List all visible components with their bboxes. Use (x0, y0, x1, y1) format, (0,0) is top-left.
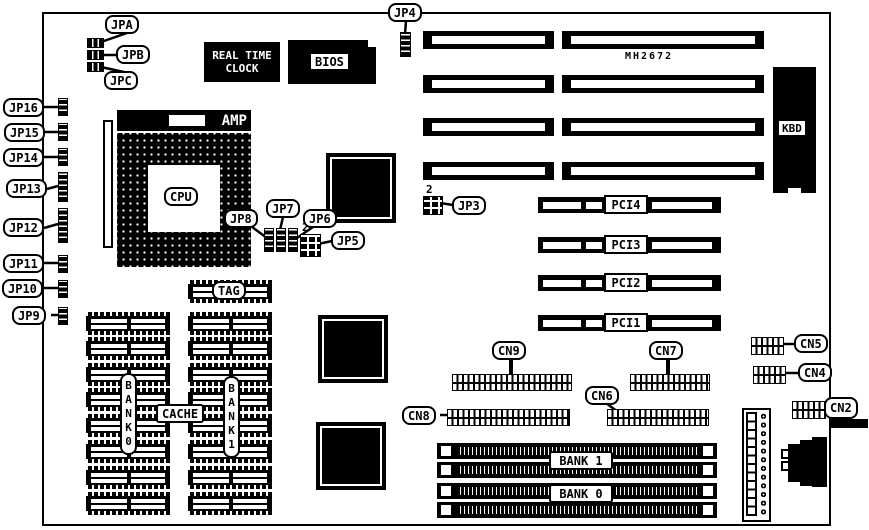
jp7-label: JP7 (266, 199, 300, 218)
jp13-jumper (58, 172, 68, 202)
din-contact (781, 461, 790, 471)
power-pin-column (760, 412, 767, 516)
cn2-label: CN2 (824, 397, 858, 419)
jp7-jumper (276, 228, 286, 252)
keyboard-din-connector (812, 437, 827, 487)
jp8-label: JP8 (224, 209, 258, 228)
cache-chip (86, 337, 170, 360)
jp3-pin2-marker: 2 (426, 183, 433, 196)
cache-chip (188, 492, 272, 515)
cache-chip (188, 312, 272, 335)
qfp-chip (316, 422, 386, 490)
isa-slot (423, 118, 554, 136)
jp16-label: JP16 (3, 98, 44, 117)
isa-slot (562, 75, 764, 93)
cache-chip (86, 466, 170, 489)
isa-slot (562, 118, 764, 136)
jp5-jumper (300, 234, 321, 257)
cn8-header (447, 409, 570, 426)
kbd-chip: KBD (773, 67, 816, 193)
qfp-chip (326, 153, 396, 223)
cn9-label: CN9 (492, 341, 526, 360)
simm-slot (437, 502, 717, 518)
pci4-label: PCI4 (604, 195, 648, 214)
jp13-label: JP13 (6, 179, 47, 198)
jpc-jumper (87, 62, 104, 72)
motherboard-diagram: MH2672 REAL TIME CLOCK BIOS KBD AMP CPU … (0, 0, 869, 530)
jp4-label: JP4 (388, 3, 422, 22)
jp12-jumper (58, 208, 68, 243)
cn6-label: CN6 (585, 386, 619, 405)
jp3-jumper (423, 196, 443, 215)
jp4-jumper (400, 32, 411, 57)
chipset-text: MH2672 (625, 51, 673, 62)
jp9-jumper (58, 307, 68, 325)
jp9-label: JP9 (12, 306, 46, 325)
bank0-column-label: BANK0 (120, 373, 137, 455)
rtc-label-line1: REAL TIME (212, 49, 272, 62)
cache-chip (188, 466, 272, 489)
cn5-label: CN5 (794, 334, 828, 353)
din-contact (781, 449, 790, 459)
jp8-jumper (264, 228, 274, 252)
isa-slot (562, 31, 764, 49)
jpa-jumper (87, 38, 104, 48)
jpb-label: JPB (116, 45, 150, 64)
rtc-label-line2: CLOCK (225, 62, 258, 75)
jp6-jumper (288, 228, 298, 252)
jp11-label: JP11 (3, 254, 44, 273)
cn9-header (452, 374, 572, 391)
cache-chip (188, 337, 272, 360)
jp12-label: JP12 (3, 218, 44, 237)
qfp-chip (318, 315, 388, 383)
pci-slot-3: PCI3 (538, 237, 721, 253)
bios-chip: BIOS (288, 40, 376, 84)
isa-slot (423, 75, 554, 93)
cn7-label: CN7 (649, 341, 683, 360)
pci2-label: PCI2 (604, 273, 648, 292)
isa-slot (423, 162, 554, 180)
cpu-label: CPU (164, 187, 198, 206)
kbd-label: KBD (778, 120, 806, 136)
socket-brand-label: AMP (222, 113, 247, 129)
cache-label: CACHE (156, 404, 204, 423)
jpb-jumper (87, 50, 104, 60)
pci-slot-2: PCI2 (538, 275, 721, 291)
jp10-label: JP10 (2, 279, 43, 298)
jp11-jumper (58, 255, 68, 273)
tag-label: TAG (212, 281, 246, 300)
isa-slot (423, 31, 554, 49)
jp15-label: JP15 (4, 123, 45, 142)
cpu-socket-header: AMP (117, 110, 251, 131)
simm-bank1-label: BANK 1 (549, 451, 613, 470)
jp3-label: JP3 (452, 196, 486, 215)
jp14-label: JP14 (3, 148, 44, 167)
simm-bank0-label: BANK 0 (549, 484, 613, 503)
jp5-label: JP5 (331, 231, 365, 250)
jp14-jumper (58, 148, 68, 166)
cn6-header (607, 409, 709, 426)
jpa-label: JPA (105, 15, 139, 34)
isa-slot (562, 162, 764, 180)
pci-slot-1: PCI1 (538, 315, 721, 331)
jp15-jumper (58, 123, 68, 141)
power-pin-column (746, 412, 757, 516)
pci3-label: PCI3 (604, 235, 648, 254)
jp10-jumper (58, 280, 68, 298)
cn2-block (792, 401, 826, 419)
jp6-label: JP6 (303, 209, 337, 228)
bank1-column-label: BANK1 (223, 376, 240, 458)
cn5-block (751, 337, 784, 355)
din-external-bar (830, 419, 868, 428)
pci-slot-4: PCI4 (538, 197, 721, 213)
jpc-label: JPC (104, 71, 138, 90)
rtc-chip: REAL TIME CLOCK (204, 42, 280, 82)
kbd-notch (788, 188, 801, 193)
cn8-label: CN8 (402, 406, 436, 425)
cache-chip (86, 492, 170, 515)
jp16-jumper (58, 98, 68, 116)
cpu-socket-lever (103, 120, 113, 248)
bios-label: BIOS (310, 53, 349, 70)
bios-notch (368, 40, 376, 47)
cn4-block (753, 366, 786, 384)
cn4-label: CN4 (798, 363, 832, 382)
socket-header-slot (169, 115, 205, 126)
cn7-header (630, 374, 710, 391)
pci1-label: PCI1 (604, 313, 648, 332)
cache-chip (86, 312, 170, 335)
power-connector (742, 408, 771, 522)
